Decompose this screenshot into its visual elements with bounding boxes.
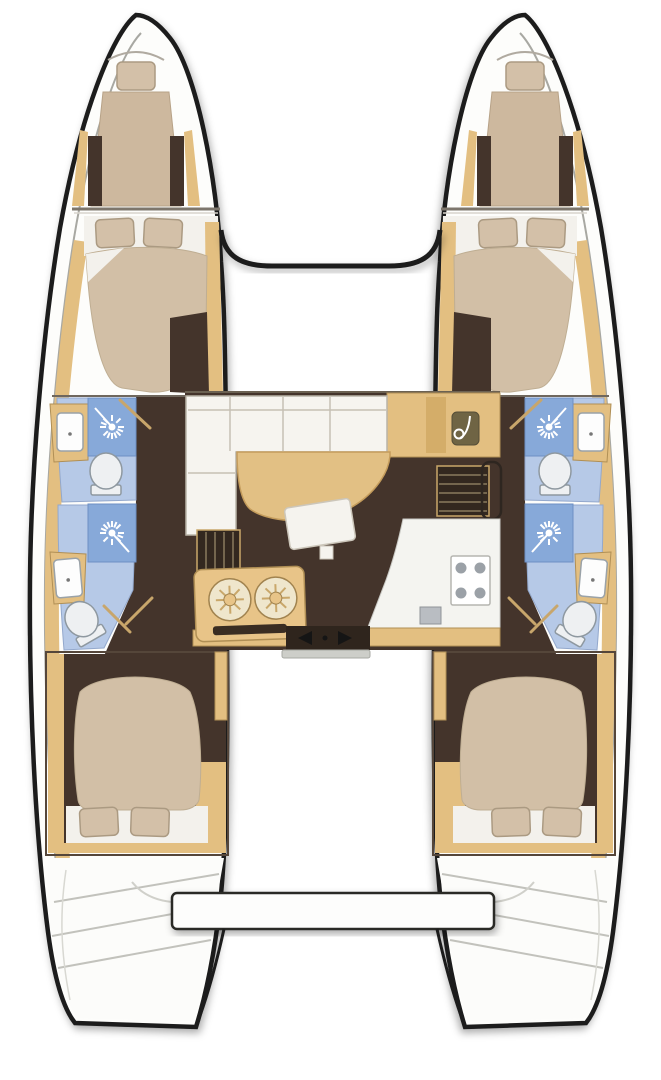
burner-icon: [456, 588, 467, 599]
burner-icon: [475, 588, 486, 599]
burner-icon: [456, 563, 467, 574]
stove: [451, 556, 490, 605]
forward-crossbeam: [221, 230, 440, 266]
galley-sink: [420, 607, 441, 624]
catamaran-floor-plan: [0, 0, 661, 1080]
burner-icon: [475, 563, 486, 574]
cockpit-post: [215, 652, 227, 720]
saloon: [185, 392, 501, 658]
nav-seat: [426, 397, 446, 453]
instrument-panel-icon: [452, 412, 479, 445]
aft-counter-front: [368, 628, 500, 646]
table-leg: [320, 546, 333, 559]
cockpit-post: [434, 652, 446, 720]
cockpit-bench: [172, 893, 494, 929]
sliding-door: [282, 626, 370, 658]
round-sink: [208, 578, 251, 621]
door-threshold: [282, 650, 370, 658]
round-sink: [254, 576, 297, 619]
